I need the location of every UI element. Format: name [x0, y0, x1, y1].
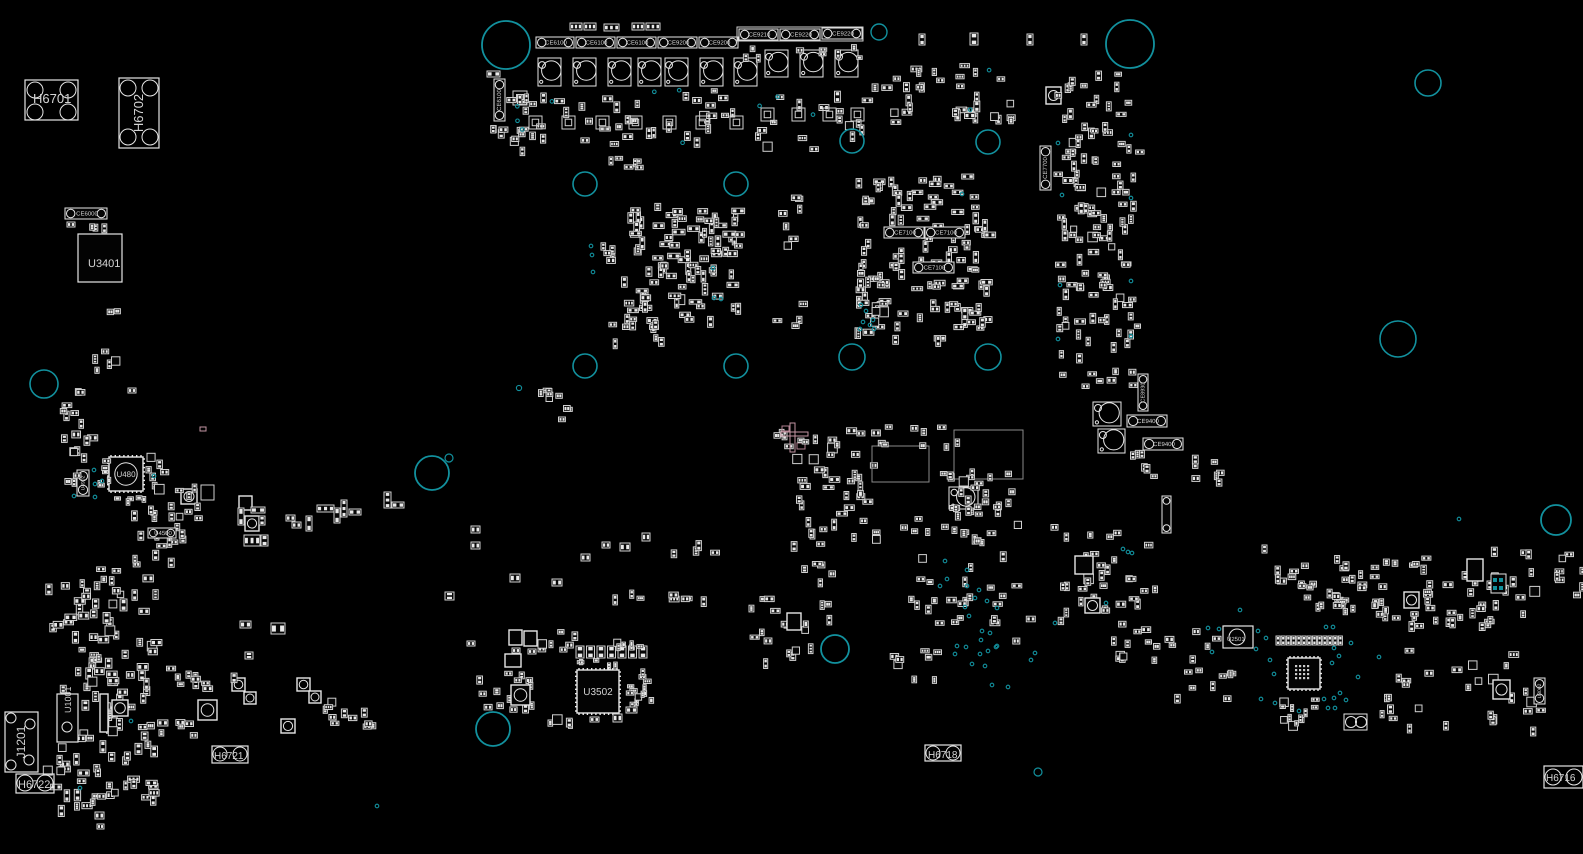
svg-text:H6716: H6716	[1546, 773, 1576, 784]
svg-text:U3502: U3502	[583, 687, 613, 698]
svg-text:H6718: H6718	[928, 750, 958, 761]
svg-text:CE7100: CE7100	[924, 265, 946, 272]
svg-text:CE9220: CE9220	[832, 31, 854, 38]
svg-text:CE6100: CE6100	[545, 40, 567, 47]
svg-text:CE6100: CE6100	[496, 88, 503, 110]
svg-text:CE7700: CE7700	[1042, 156, 1049, 178]
svg-text:U1001: U1001	[63, 686, 73, 713]
svg-text:CE7100: CE7100	[935, 230, 957, 237]
svg-text:U3002: U3002	[1537, 683, 1543, 698]
svg-text:H6701: H6701	[33, 91, 71, 106]
svg-text:CE9200: CE9200	[709, 40, 731, 47]
svg-text:CE6100: CE6100	[627, 40, 649, 47]
svg-text:CE6100: CE6100	[586, 40, 608, 47]
svg-text:J1201: J1201	[14, 725, 28, 758]
svg-text:CE9400: CE9400	[1137, 418, 1159, 425]
svg-text:U4500: U4500	[154, 530, 172, 537]
svg-text:CE9210: CE9210	[749, 32, 771, 39]
svg-text:U480: U480	[116, 470, 136, 479]
svg-text:CE9400: CE9400	[1153, 441, 1175, 448]
svg-text:U3401: U3401	[88, 258, 120, 270]
svg-text:CE6000: CE6000	[76, 211, 98, 218]
svg-text:CE9200: CE9200	[668, 40, 690, 47]
svg-text:U2501: U2501	[1227, 636, 1245, 643]
svg-text:H6702: H6702	[131, 94, 146, 132]
svg-text:H6722: H6722	[18, 779, 50, 791]
svg-text:CE8930: CE8930	[1140, 383, 1146, 403]
svg-text:CE7100: CE7100	[894, 230, 916, 237]
svg-text:H6721: H6721	[214, 751, 244, 762]
svg-text:CE9220: CE9220	[790, 32, 812, 39]
